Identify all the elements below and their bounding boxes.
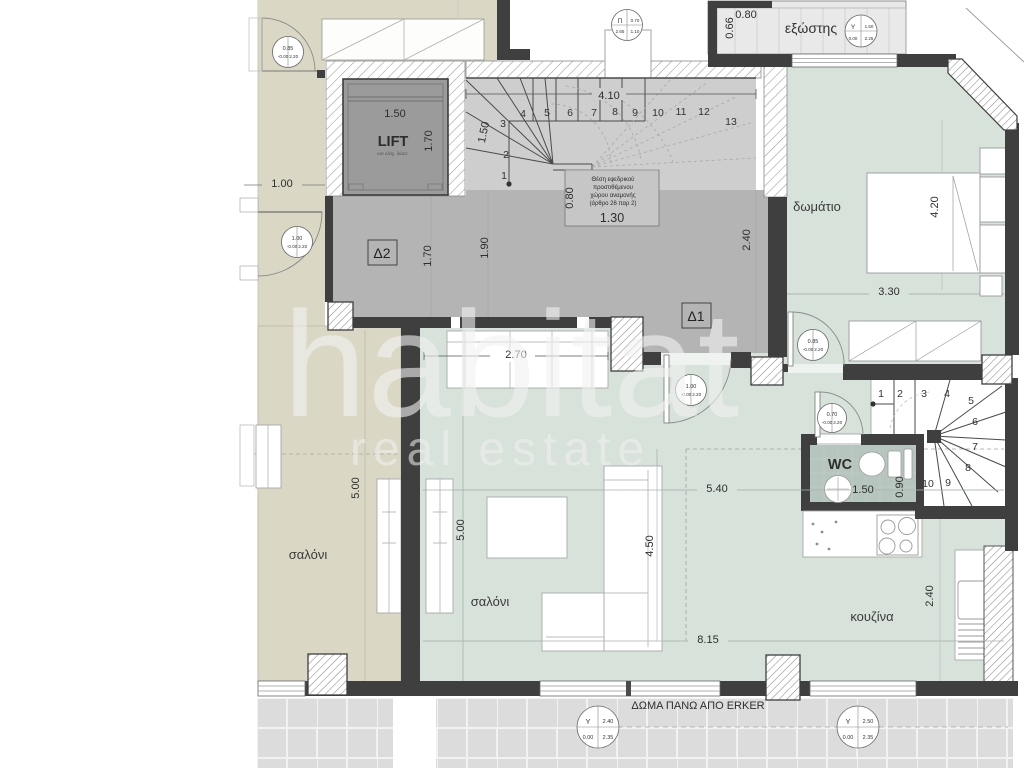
svg-text:χώρου αναμονής: χώρου αναμονής [590, 192, 635, 199]
svg-text:0.85: 0.85 [283, 46, 294, 52]
svg-text:2.35: 2.35 [603, 735, 614, 741]
svg-text:12: 12 [698, 106, 710, 118]
svg-text:1: 1 [878, 388, 884, 400]
svg-text:1.50: 1.50 [865, 24, 874, 29]
svg-text:σαλόνι: σαλόνι [471, 594, 510, 609]
svg-text:5: 5 [544, 107, 550, 119]
svg-text:0.80: 0.80 [735, 9, 756, 21]
svg-text:6: 6 [567, 107, 573, 119]
svg-text:0.66: 0.66 [724, 17, 736, 38]
svg-text:real estate: real estate [350, 423, 651, 476]
svg-text:Δ2: Δ2 [373, 245, 390, 261]
svg-text:8.15: 8.15 [697, 634, 718, 646]
svg-text:0.80: 0.80 [564, 187, 576, 208]
svg-text:LIFT: LIFT [378, 134, 409, 150]
svg-text:3: 3 [921, 388, 927, 400]
svg-text:1.70: 1.70 [423, 130, 435, 151]
svg-text:0.00: 0.00 [849, 36, 858, 41]
svg-text:0.70: 0.70 [631, 18, 640, 23]
svg-text:2.40: 2.40 [603, 719, 614, 725]
svg-text:ΔΩΜΑ ΠΑΝΩ ΑΠΟ ERKER: ΔΩΜΑ ΠΑΝΩ ΑΠΟ ERKER [631, 700, 764, 712]
svg-text:εξώστης: εξώστης [785, 20, 837, 36]
svg-text:σαλόνι: σαλόνι [289, 547, 328, 562]
svg-text:4.10: 4.10 [598, 90, 619, 102]
svg-text:1.50: 1.50 [384, 108, 405, 120]
svg-text:Θέση εφεδρικού: Θέση εφεδρικού [592, 176, 635, 183]
svg-text:0.00: 0.00 [843, 735, 854, 741]
svg-text:0.70: 0.70 [827, 412, 838, 418]
svg-text:3: 3 [500, 118, 506, 130]
svg-text:13: 13 [725, 116, 737, 128]
svg-text:WC: WC [828, 457, 853, 473]
svg-text:5.00: 5.00 [350, 477, 362, 498]
svg-text:1.00: 1.00 [271, 178, 292, 190]
svg-text:4: 4 [944, 388, 950, 400]
svg-text:9: 9 [945, 477, 951, 489]
svg-text:2.40: 2.40 [741, 229, 753, 250]
svg-text:1.70: 1.70 [422, 245, 434, 266]
svg-text:0.90: 0.90 [894, 476, 906, 497]
svg-text:11: 11 [676, 106, 687, 118]
svg-text:9: 9 [632, 107, 638, 119]
svg-text:-0.00 2.20: -0.00 2.20 [803, 347, 824, 352]
svg-text:προστιθέμενου: προστιθέμενου [593, 184, 633, 191]
svg-text:2.65: 2.65 [616, 29, 625, 34]
svg-text:-0.00 2.20: -0.00 2.20 [287, 244, 308, 249]
svg-text:1.10: 1.10 [631, 29, 640, 34]
svg-text:4.20: 4.20 [929, 196, 941, 217]
svg-text:5: 5 [968, 395, 974, 407]
svg-text:(άρθρο 26 παρ 2): (άρθρο 26 παρ 2) [590, 200, 637, 207]
svg-text:-0.00 2.20: -0.00 2.20 [278, 54, 299, 59]
svg-text:6: 6 [972, 416, 978, 428]
svg-text:7: 7 [972, 441, 978, 453]
svg-text:2: 2 [503, 149, 509, 161]
svg-text:1.90: 1.90 [479, 237, 491, 258]
svg-text:2.35: 2.35 [863, 735, 874, 741]
svg-text:4: 4 [520, 108, 526, 120]
svg-text:δωμάτιο: δωμάτιο [793, 199, 841, 214]
svg-text:2.40: 2.40 [924, 585, 936, 606]
svg-text:1.00: 1.00 [292, 236, 303, 242]
svg-text:Υ: Υ [845, 717, 850, 726]
svg-text:3.30: 3.30 [878, 286, 899, 298]
svg-text:Υ: Υ [585, 717, 590, 726]
svg-text:5.40: 5.40 [706, 483, 727, 495]
svg-text:1.50: 1.50 [852, 484, 873, 496]
svg-text:1: 1 [501, 170, 507, 182]
svg-text:0.00: 0.00 [583, 735, 594, 741]
svg-text:8: 8 [965, 462, 971, 474]
svg-text:0.85: 0.85 [808, 339, 819, 345]
svg-text:-0.00 2.20: -0.00 2.20 [822, 420, 843, 425]
svg-text:2.50: 2.50 [863, 719, 874, 725]
svg-text:10: 10 [652, 107, 664, 119]
svg-text:10: 10 [922, 478, 934, 490]
svg-text:Π: Π [618, 18, 623, 25]
svg-text:7: 7 [591, 107, 597, 119]
svg-text:4.50: 4.50 [644, 535, 656, 556]
svg-text:Υ: Υ [851, 24, 856, 31]
svg-text:8: 8 [612, 106, 618, 118]
svg-text:5.00: 5.00 [455, 519, 467, 540]
svg-text:2.25: 2.25 [865, 36, 874, 41]
svg-text:1.30: 1.30 [600, 211, 624, 225]
svg-text:κατ ελάχ. διάστ.: κατ ελάχ. διάστ. [377, 150, 408, 156]
svg-text:κουζίνα: κουζίνα [850, 609, 894, 624]
svg-text:2: 2 [897, 388, 903, 400]
